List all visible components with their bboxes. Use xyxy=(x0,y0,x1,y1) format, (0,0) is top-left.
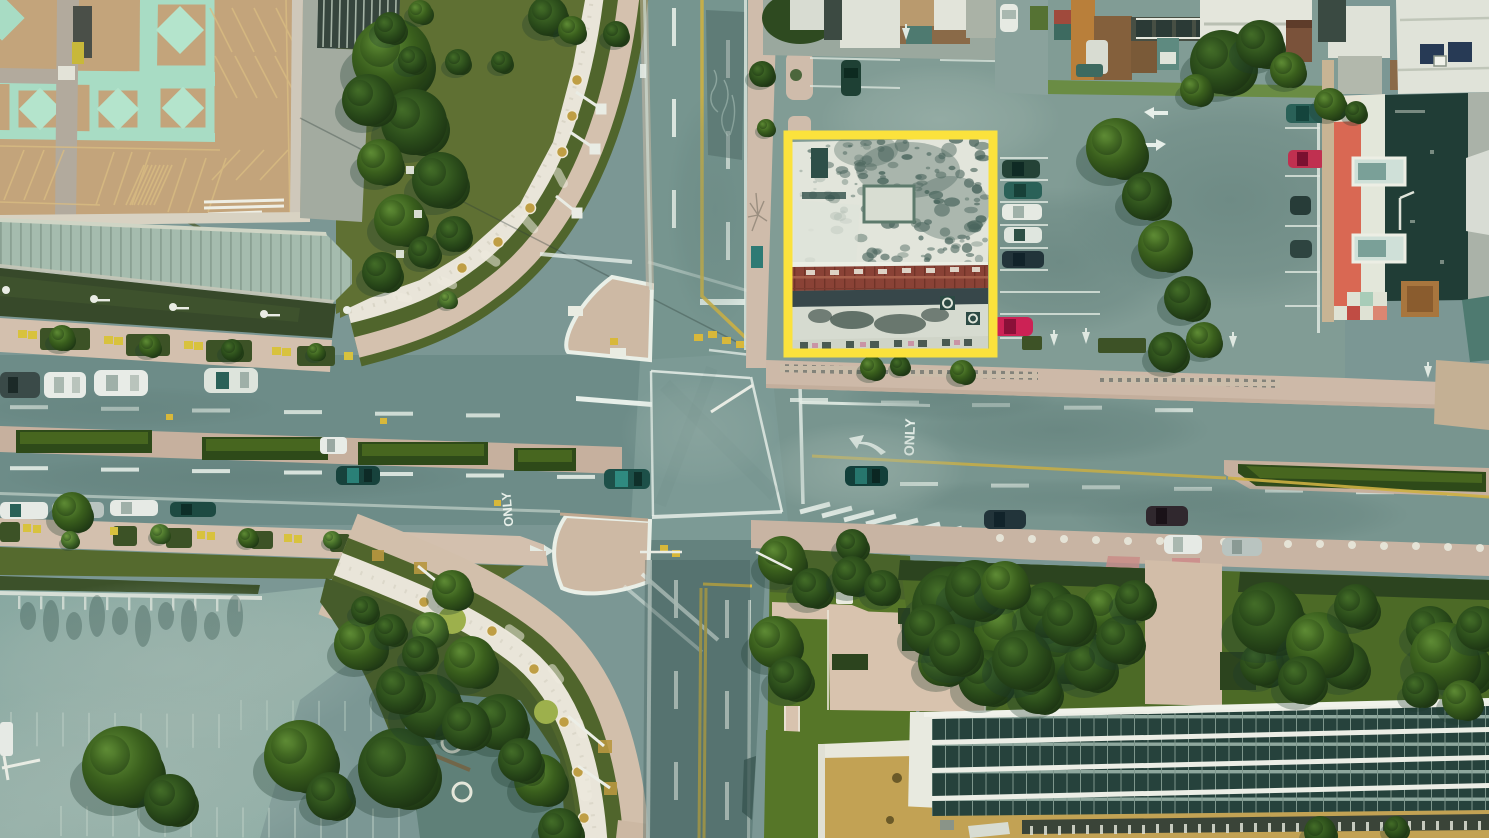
svg-text:ONLY: ONLY xyxy=(498,491,516,527)
